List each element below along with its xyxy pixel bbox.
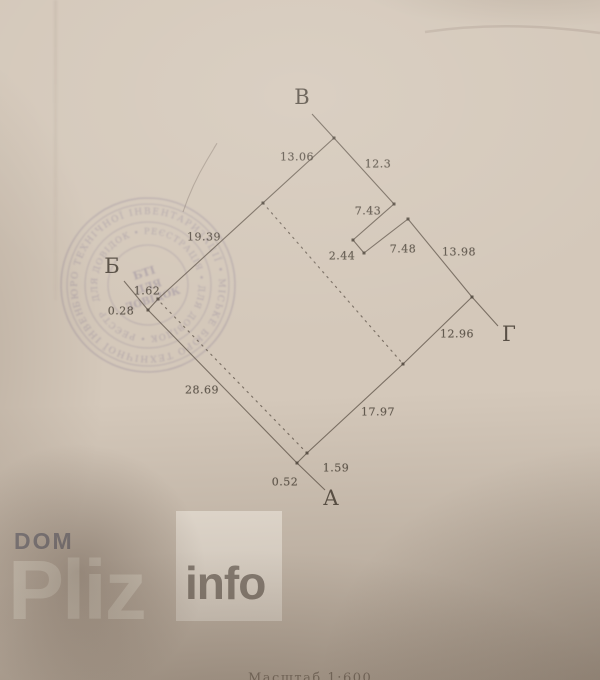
boundary-line [148,310,297,463]
measurement-label: 28.69 [185,384,219,397]
corner-point-label: А [323,486,339,510]
vertex-dot [296,462,299,465]
measurement-label: 19.39 [187,231,221,244]
vertex-dot [352,239,355,242]
scale-note: Масштаб 1:600 [248,671,372,680]
boundary-line [312,114,334,138]
measurement-label: 12.3 [365,158,392,171]
boundary-line [472,297,498,326]
measurement-label: 13.06 [280,151,314,164]
measurement-label: 17.97 [361,406,395,419]
watermark-pliz-text: Pliz [8,548,145,632]
vertex-dot [471,296,474,299]
measurement-label: 0.28 [108,305,135,318]
corner-point-label: Г [502,322,516,346]
vertex-dot [393,203,396,206]
vertex-dot [306,452,309,455]
boundary-line [297,463,325,490]
boundary-line [148,299,158,310]
vertex-dot [402,363,405,366]
measurement-label: 2.44 [329,250,356,263]
vertex-dot [333,137,336,140]
measurement-label: 1.59 [323,462,350,475]
vertex-dot [363,252,366,255]
measurement-label: 7.43 [355,205,382,218]
document-photo: БЮРО ТЕХНІЧНОЇ ІНВЕНТАРИЗАЦІЇ • МІСЬКЕ Б… [0,0,600,680]
measurement-label: 13.98 [442,246,476,259]
vertex-dot [407,218,410,221]
vertex-dot [262,202,265,205]
measurement-label: 7.48 [390,243,417,256]
boundary-dashed-line [161,303,305,451]
boundary-line [334,138,394,204]
boundary-dashed-line [263,203,403,364]
vertex-dot [147,309,150,312]
measurement-label: 12.96 [440,328,474,341]
watermark-info-text: info [185,560,265,606]
measurement-label: 1.62 [134,285,161,298]
corner-point-label: Б [104,254,119,278]
measurement-label: 0.52 [272,476,299,489]
corner-point-label: В [294,85,309,109]
vertex-dot [157,298,160,301]
